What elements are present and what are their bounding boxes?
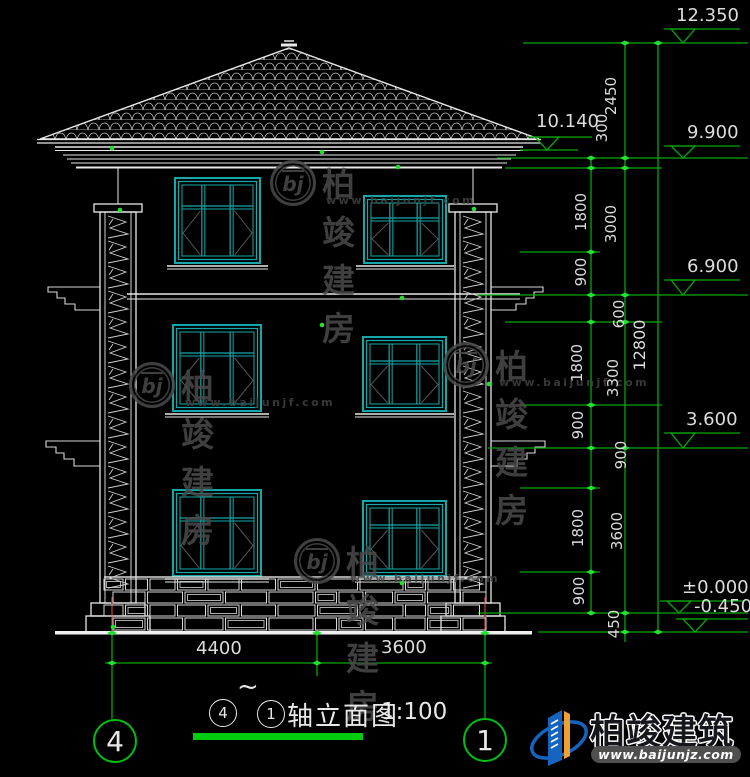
node-dot-icon xyxy=(400,296,405,301)
ground-line xyxy=(55,631,532,635)
dim-tick-icon xyxy=(586,486,596,491)
dim-tick-icon xyxy=(586,570,596,575)
watermark-logo-icon: bj xyxy=(270,160,316,206)
dim-tick-icon xyxy=(586,611,596,616)
dim-tick-icon xyxy=(586,320,596,325)
dim-tick-icon xyxy=(312,661,322,666)
dim-tick-icon xyxy=(620,156,630,161)
window xyxy=(167,178,268,269)
title-tilde: ~ xyxy=(237,672,259,702)
brand-block: 柏竣建筑 www.baijunjz.com xyxy=(528,694,750,777)
watermark-url: www.baijunjf.com xyxy=(326,194,476,207)
axis-bubble-1: 1 xyxy=(463,718,507,762)
dim-tick-icon xyxy=(653,630,663,635)
watermark-logo-icon: bj xyxy=(443,342,489,388)
level-label-zero: ±0.000 xyxy=(682,580,749,596)
dim-label: 900 xyxy=(570,385,586,465)
dim-label: 3000 xyxy=(603,184,619,264)
dim-tick-icon xyxy=(586,403,596,408)
level-marker-icon xyxy=(664,29,740,43)
title-axis-start-bubble: 4 xyxy=(209,699,237,727)
dim-label: 3300 xyxy=(605,338,621,418)
watermark-url: www.baijunjf.com xyxy=(350,572,500,585)
cad-elevation-canvas: bj 柏竣建房 www.baijunjf.com bj 柏竣建房 www.bai… xyxy=(0,0,750,777)
watermark-text: 柏竣建房 xyxy=(181,360,218,552)
dim-tick-icon xyxy=(620,166,630,171)
node-dot-icon xyxy=(111,625,116,630)
dim-tick-icon xyxy=(653,41,663,46)
dim-tick-icon xyxy=(620,41,630,46)
dim-tick-icon xyxy=(586,446,596,451)
node-dot-icon xyxy=(110,146,115,151)
node-dot-icon xyxy=(487,382,492,387)
level-label-n450: -0.450 xyxy=(694,599,750,615)
watermark-text: 柏竣建房 xyxy=(322,158,359,350)
level-label-9900: 9.900 xyxy=(687,125,739,141)
level-label-10140: 10.140 xyxy=(536,114,599,130)
title-underline xyxy=(193,733,363,740)
title-axis-end-bubble: 1 xyxy=(257,700,285,728)
dim-label-total: 12800 xyxy=(632,305,648,385)
node-dot-icon xyxy=(472,207,477,212)
brand-url: www.baijunjz.com xyxy=(591,746,741,763)
brand-logo-icon xyxy=(528,696,592,776)
dim-tick-icon xyxy=(107,661,117,666)
axis-line-red xyxy=(112,597,485,631)
node-dot-icon xyxy=(320,150,325,155)
level-label-3600: 3.600 xyxy=(686,412,738,428)
level-marker-icon xyxy=(676,619,748,632)
level-marker-icon xyxy=(664,146,740,158)
dim-label-bottom-left: 4400 xyxy=(196,641,242,657)
level-marker-icon xyxy=(664,280,740,295)
node-dot-icon xyxy=(118,208,123,213)
dim-tick-icon xyxy=(480,661,490,666)
dim-label: 900 xyxy=(573,232,589,312)
level-label-6900: 6.900 xyxy=(687,259,739,275)
watermark-logo-icon: bj xyxy=(129,362,175,408)
dim-label: 900 xyxy=(571,551,587,631)
level-marker-icon xyxy=(664,433,740,448)
node-dot-icon xyxy=(396,165,401,170)
dim-label: 450 xyxy=(606,584,622,664)
axis-bubble-4: 4 xyxy=(93,719,137,763)
drawing-scale: 1:100 xyxy=(381,699,447,725)
watermark-logo-icon: bj xyxy=(294,538,340,584)
dim-label: 300 xyxy=(594,88,610,168)
dim-label-bottom-right: 3600 xyxy=(381,640,427,656)
dim-label: 900 xyxy=(613,415,629,495)
watermark-url: www.baijunjf.com xyxy=(185,396,335,409)
window xyxy=(355,337,454,417)
level-label-12350: 12.350 xyxy=(676,8,739,24)
watermark-text: 柏竣建房 xyxy=(495,340,532,532)
dim-label: 3600 xyxy=(609,491,625,571)
